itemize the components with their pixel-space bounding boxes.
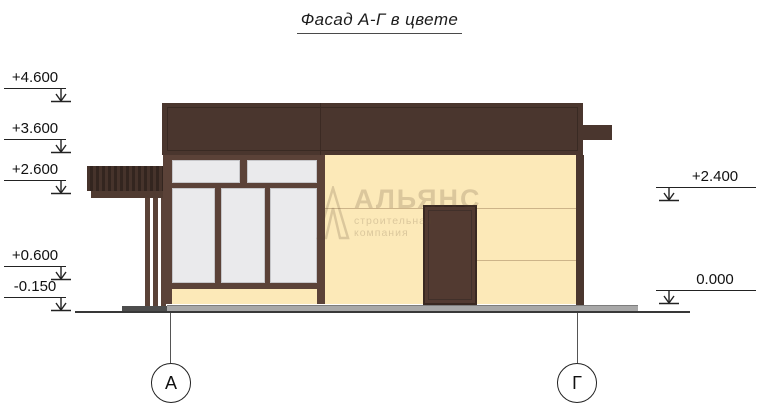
down-arrow-icon	[658, 187, 682, 203]
axis-line-g	[577, 313, 578, 363]
door	[423, 205, 477, 305]
door-panel-outline	[428, 210, 472, 300]
down-arrow-icon	[658, 290, 682, 306]
elevation-mark-0600: +0.600	[4, 247, 66, 267]
elevation-label: +4.600	[4, 69, 66, 89]
corner-pilaster	[576, 155, 584, 307]
canopy-fascia	[91, 191, 170, 198]
spandrel-panel	[172, 289, 317, 304]
axis-label-g: Г	[572, 373, 582, 394]
title-row: Фасад А-Г в цвете	[0, 10, 759, 34]
axis-label-a: А	[165, 373, 177, 394]
elevation-label: 0.000	[656, 271, 756, 291]
axis-marker-g: Г	[557, 363, 597, 403]
elevation-label: +0.600	[4, 247, 66, 267]
window-pane-transom-1	[172, 160, 240, 183]
window-pane-1	[172, 188, 215, 283]
elevation-mark-3600: +3.600	[4, 120, 66, 140]
canopy-post	[153, 198, 158, 306]
page-title: Фасад А-Г в цвете	[297, 10, 463, 34]
roof	[162, 103, 583, 155]
elevation-mark-2400: +2.400	[656, 168, 756, 188]
down-arrow-icon	[48, 180, 72, 196]
elevation-label: +3.600	[4, 120, 66, 140]
elevation-mark-0000: 0.000	[656, 271, 756, 291]
ground-line	[75, 311, 690, 313]
elevation-label: -0.150	[4, 278, 66, 298]
canopy	[87, 166, 165, 191]
roof-beam	[583, 125, 612, 140]
wall-joint-line-lower	[477, 260, 576, 261]
window-pane-3	[270, 188, 317, 283]
down-arrow-icon	[48, 297, 72, 313]
axis-line-a	[170, 313, 171, 363]
elevation-label: +2.400	[656, 168, 756, 188]
facade-drawing: Фасад А-Г в цвете АЛЬЯНС строительная ко…	[0, 0, 759, 418]
roof-joint-line	[320, 103, 321, 155]
window-pane-transom-2	[247, 160, 317, 183]
down-arrow-icon	[48, 88, 72, 104]
canopy-post	[145, 198, 150, 306]
elevation-mark-minus-0150: -0.150	[4, 278, 66, 298]
roof-inner-outline	[167, 107, 578, 151]
window-pane-2	[221, 188, 265, 283]
elevation-mark-4600: +4.600	[4, 69, 66, 89]
axis-marker-a: А	[151, 363, 191, 403]
down-arrow-icon	[48, 139, 72, 155]
window-frame	[163, 155, 325, 304]
elevation-label: +2.600	[4, 161, 66, 181]
elevation-mark-2600: +2.600	[4, 161, 66, 181]
